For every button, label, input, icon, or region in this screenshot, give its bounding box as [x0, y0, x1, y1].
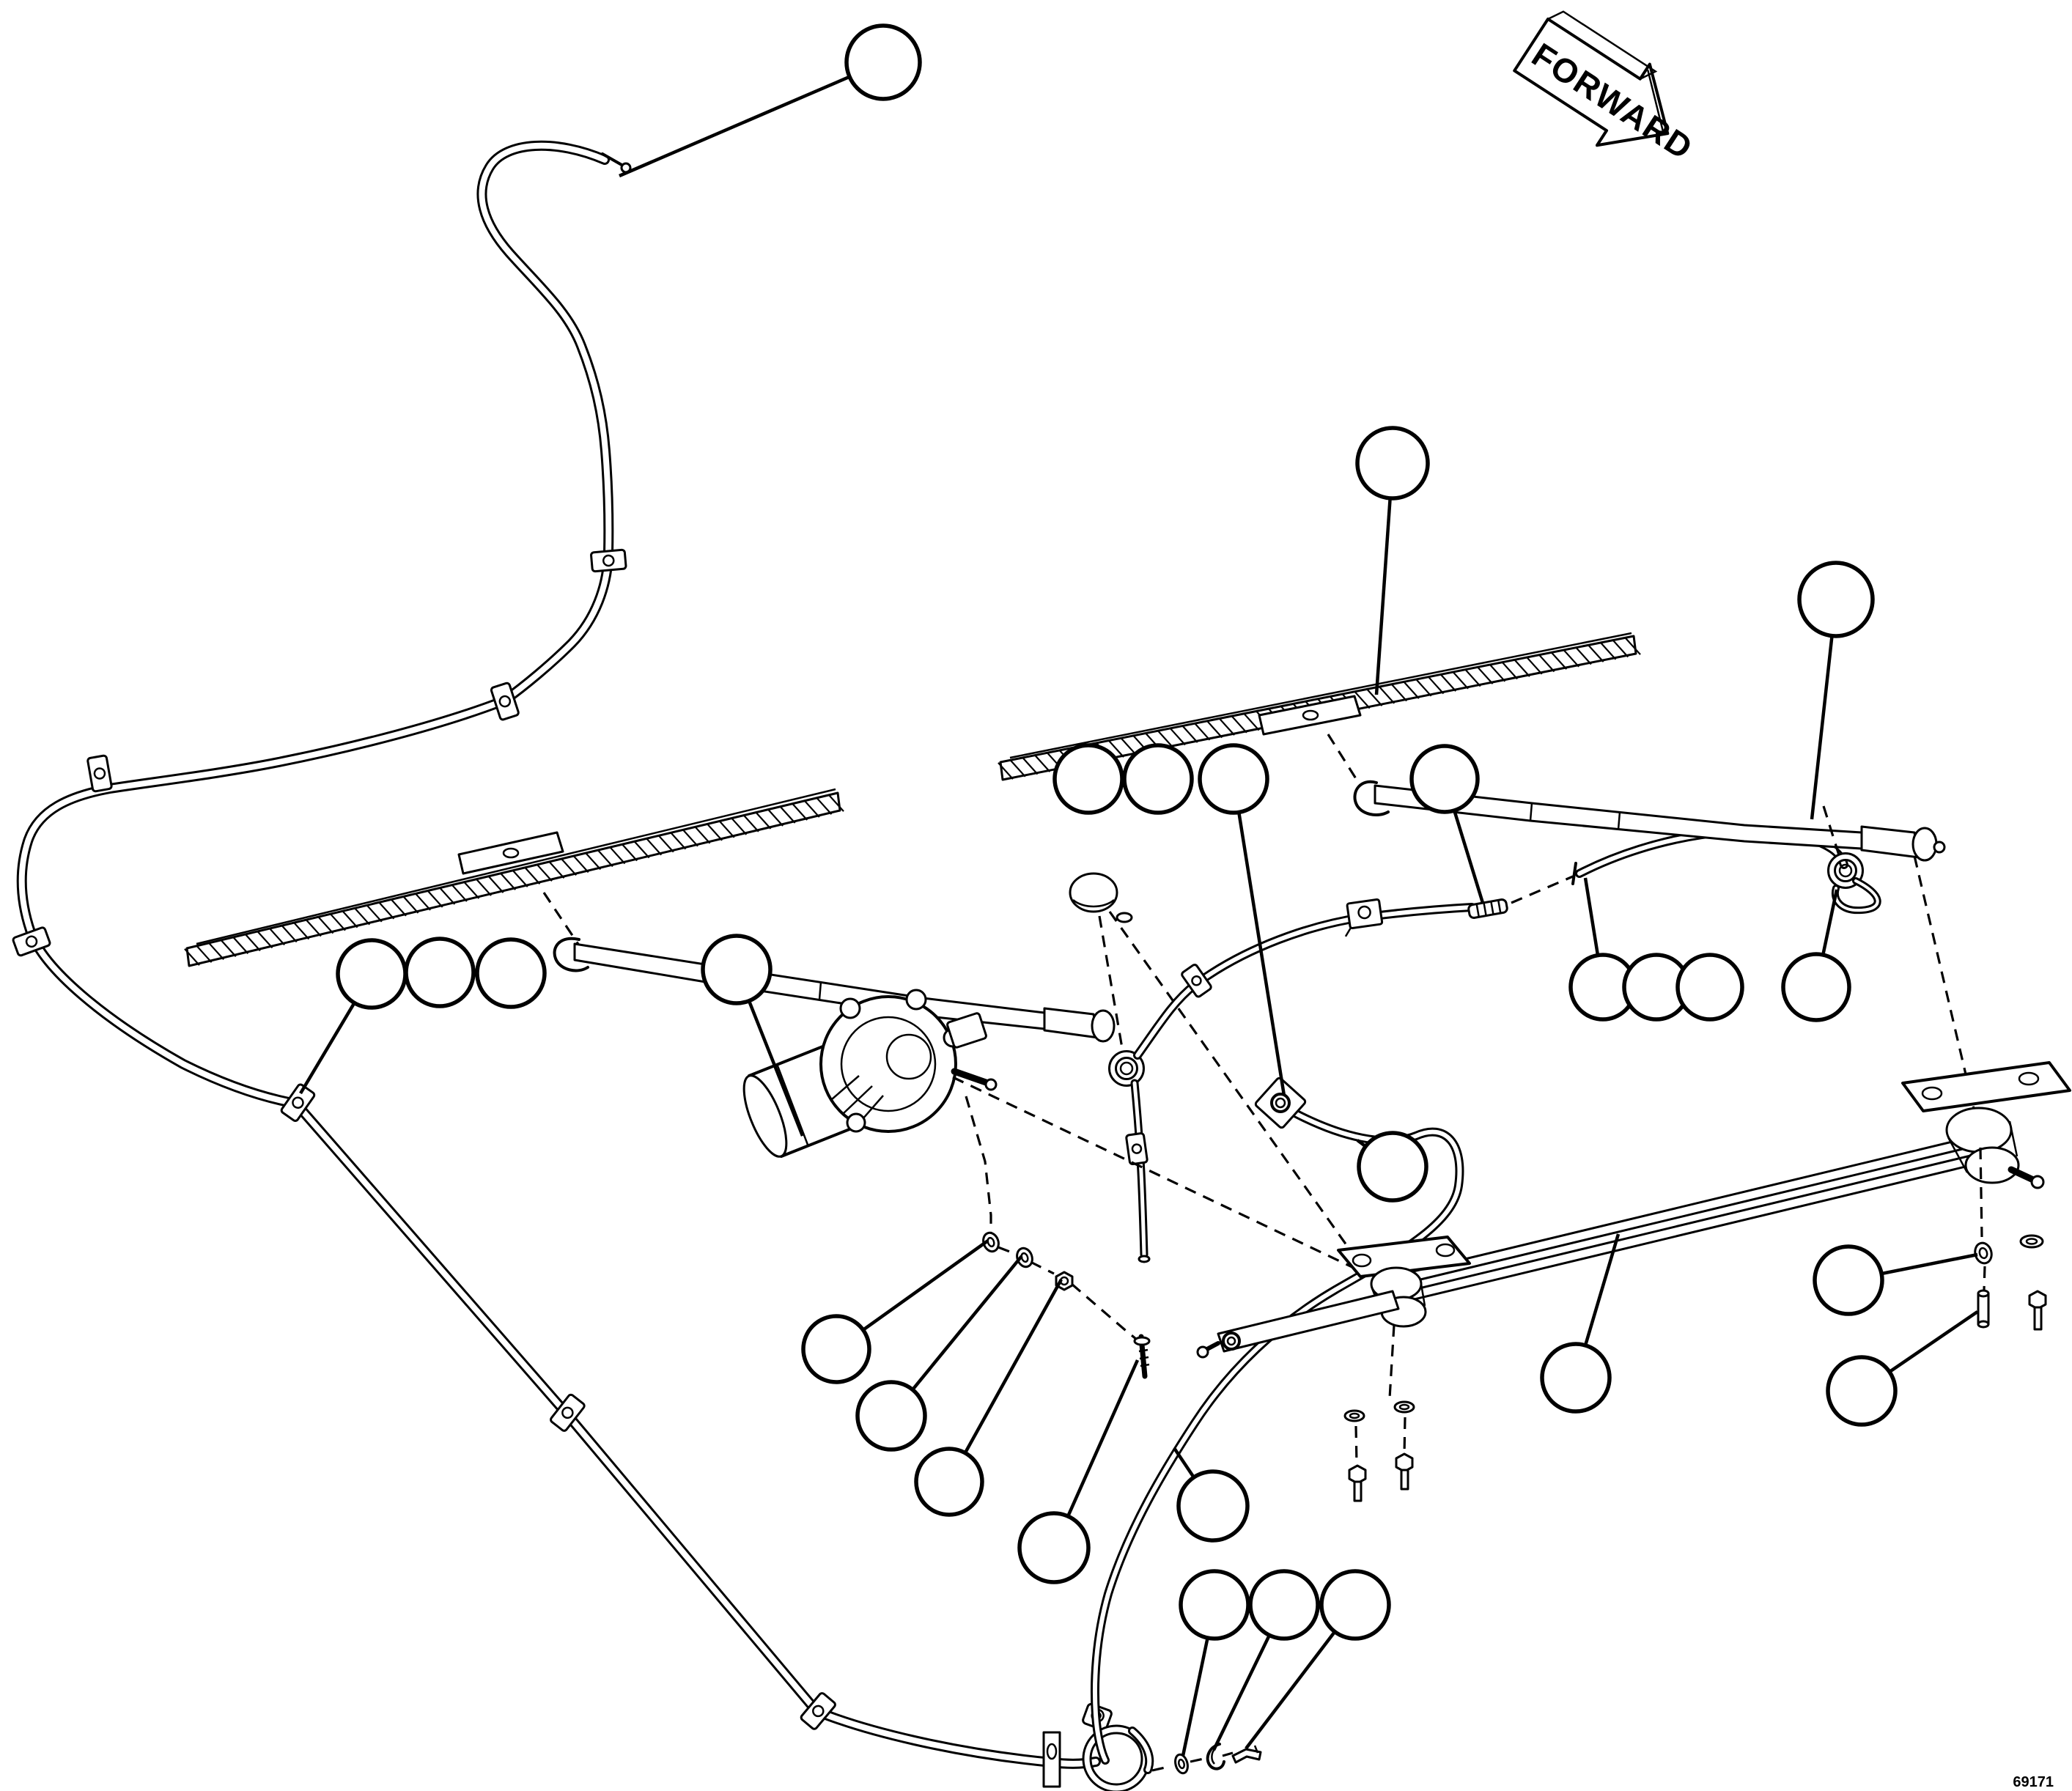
callout-circle — [1678, 955, 1742, 1019]
mount-stud-icon — [1135, 1337, 1149, 1376]
bolt-icon — [2029, 1291, 2046, 1329]
callout-circle — [916, 1449, 982, 1515]
callout-circle — [338, 940, 405, 1008]
callout-leader — [619, 62, 883, 176]
bolt-icon — [1349, 1466, 1365, 1501]
callout-circle — [1055, 745, 1122, 813]
callout-circle — [1200, 745, 1267, 813]
arm-pivot-cap-icon — [1913, 828, 1936, 860]
hose-grommet-clip-icon — [1255, 1077, 1307, 1129]
callout-circle — [1783, 954, 1849, 1020]
forward-label: FORWARD — [1525, 35, 1700, 167]
callout-circle — [1412, 746, 1478, 812]
washer-icon — [1395, 1402, 1414, 1412]
callout-circle — [858, 1382, 925, 1450]
washer-icon — [1014, 1246, 1035, 1269]
hose-bottom-fittings — [1044, 1703, 1261, 1788]
hose-clip-icon — [87, 756, 112, 792]
pivot-mount-plate-icon — [1903, 1063, 2070, 1111]
callout-circle — [1321, 1571, 1389, 1639]
bolt-icon — [1396, 1454, 1412, 1489]
callout-circle — [477, 939, 545, 1007]
callout-circle — [1020, 1513, 1088, 1582]
hose-coupler-icon — [1468, 899, 1508, 919]
hose-clip-icon — [1126, 1133, 1147, 1164]
hose-clip-icon — [591, 550, 626, 572]
callout-group — [301, 26, 1977, 1756]
forward-arrow: FORWARD — [1505, 4, 1718, 190]
callout-circle — [1181, 1571, 1248, 1639]
mount-bracket-icon — [1044, 1732, 1060, 1787]
spacer-icon — [1978, 1290, 1988, 1327]
callout-circle — [703, 936, 770, 1003]
callout-circle — [1124, 745, 1192, 813]
washer-icon — [2021, 1236, 2043, 1247]
callout-circle — [406, 939, 473, 1006]
callout-circle — [1357, 428, 1428, 498]
callout-circle — [1815, 1247, 1882, 1314]
callout-circle — [1542, 1344, 1610, 1411]
callout-circle — [1828, 1357, 1895, 1425]
pivot-stud-icon — [2011, 1170, 2033, 1180]
washer-icon — [1345, 1411, 1364, 1421]
idler-link-icon — [1218, 1291, 1398, 1351]
callout-circle — [1179, 1471, 1247, 1540]
callout-circle — [803, 1316, 869, 1382]
pivot-bushing-icon — [1947, 1108, 2011, 1152]
drawing-number: 69171 — [2013, 1774, 2054, 1790]
callout-circle — [1359, 1133, 1426, 1200]
parts-diagram-page: FORWARD 69171 — [0, 0, 2072, 1791]
washer-icon — [1973, 1241, 1994, 1266]
wiper-arm-right — [1354, 782, 1977, 1124]
linkage-rod-icon — [1394, 1139, 1985, 1281]
callout-circle — [1250, 1571, 1318, 1639]
hose-eyelet-icon — [1173, 1753, 1190, 1774]
arm-pivot-cap-icon — [1092, 1011, 1114, 1041]
callout-circle — [847, 26, 920, 99]
callout-circle — [1799, 563, 1873, 636]
wiper-washer-exploded-diagram: FORWARD 69171 — [0, 0, 2072, 1791]
